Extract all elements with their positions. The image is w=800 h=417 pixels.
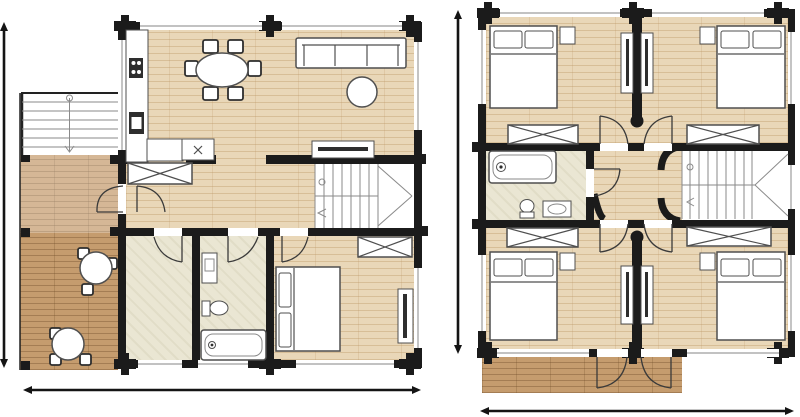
bedroom-door: [644, 224, 672, 252]
upper-bathroom-door: [594, 169, 620, 196]
cooktop-icon: [129, 58, 143, 78]
bathtub: [201, 330, 266, 360]
wall-end-cap: [631, 115, 644, 128]
upper-horizontal-dimension-line: [480, 407, 794, 415]
utility-door: [154, 236, 182, 262]
dining-chair: [203, 40, 218, 53]
ground-staircase: [315, 164, 412, 228]
kitchen-counter: [147, 139, 183, 161]
bedroom-wardrobe: [358, 237, 412, 257]
living-room-furniture: [296, 38, 406, 158]
terrace-table: [50, 328, 91, 365]
nightstand: [700, 253, 715, 270]
washbasin: [202, 253, 217, 283]
nightstand: [560, 27, 575, 44]
ground-vertical-dimension-line: [0, 22, 8, 368]
dining-table: [196, 53, 248, 87]
dining-chair: [228, 87, 243, 100]
double-bed: [490, 26, 557, 108]
curved-hall-wall: [594, 194, 604, 219]
pillow: [494, 31, 522, 48]
dresser: [398, 289, 413, 343]
pillow: [753, 259, 781, 276]
dimension-arrow-left-icon: [23, 386, 32, 394]
double-bed: [717, 252, 785, 340]
washbasin: [543, 201, 571, 217]
wardrobe-xbox: [508, 125, 578, 144]
ground-bathroom-fixtures: [201, 253, 266, 360]
upper-staircase: [682, 151, 788, 219]
terrace-post-icon: [21, 153, 30, 370]
double-bed: [717, 26, 785, 108]
pillow: [753, 31, 781, 48]
dimension-arrow-down-icon: [454, 345, 462, 354]
bedroom-door: [600, 224, 628, 252]
coffee-table: [347, 77, 377, 107]
floor-plans-canvas: House floor plans: [0, 0, 800, 417]
ground-door-arcs: [97, 186, 308, 262]
nightstand: [700, 27, 715, 44]
terrace-table: [78, 248, 117, 295]
pillow: [721, 31, 749, 48]
pillow: [279, 313, 291, 347]
nightstand: [560, 253, 575, 270]
ground-bedroom-furniture: [276, 267, 413, 351]
pillow: [494, 259, 522, 276]
pillow: [721, 259, 749, 276]
dimension-arrow-right-icon: [785, 407, 794, 415]
wardrobe-xbox: [687, 227, 771, 246]
bathroom-door: [228, 236, 258, 262]
balcony-door: [597, 357, 627, 388]
bathtub: [489, 151, 556, 183]
sofa: [296, 38, 406, 68]
hall-door: [137, 186, 165, 212]
pillow: [279, 273, 291, 307]
dimension-arrow-left-icon: [480, 407, 489, 415]
bedroom-door: [600, 116, 628, 144]
bedroom-door: [282, 236, 308, 262]
stair-direction-arrow-icon: [318, 209, 326, 217]
pillow: [525, 31, 553, 48]
balcony-door: [641, 357, 671, 388]
double-bed: [490, 252, 557, 340]
upper-bathroom-fixtures: [489, 151, 571, 218]
bedroom-door: [644, 116, 672, 144]
double-bed: [276, 267, 340, 351]
tv-sideboard: [312, 141, 374, 158]
pillow: [525, 259, 553, 276]
toilet: [202, 301, 228, 316]
dining-chair: [228, 40, 243, 53]
dining-chair: [248, 61, 261, 76]
wall-end-cap: [631, 231, 644, 244]
ground-horizontal-dimension-line: [23, 386, 421, 394]
dining-set: [185, 40, 261, 100]
dimension-arrow-up-icon: [454, 10, 462, 19]
upper-vertical-dimension-line: [454, 10, 462, 354]
dimension-arrow-down-icon: [0, 359, 8, 368]
curved-hall-wall: [661, 198, 680, 221]
counter-appliance: [182, 139, 214, 160]
hall-wardrobe: [128, 163, 192, 184]
kitchen: [126, 30, 214, 162]
plan-linework: [0, 0, 800, 417]
dimension-arrow-right-icon: [412, 386, 421, 394]
toilet: [520, 200, 534, 219]
dimension-arrow-up-icon: [0, 22, 8, 31]
kitchen-sink-icon: [129, 112, 144, 134]
dining-chair: [203, 87, 218, 100]
kitchen-counter: [126, 30, 148, 162]
wardrobe-xbox: [687, 125, 759, 144]
wardrobe-xbox: [507, 228, 578, 247]
terrace-furniture: [50, 248, 117, 365]
